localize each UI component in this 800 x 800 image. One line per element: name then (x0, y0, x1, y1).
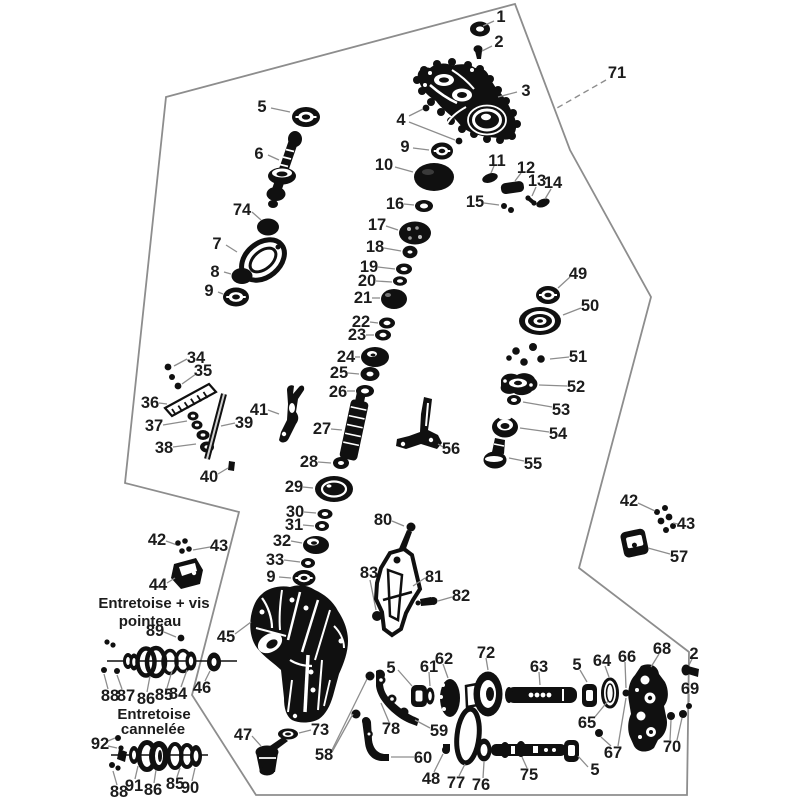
svg-text:74: 74 (233, 201, 252, 219)
svg-text:53: 53 (552, 401, 570, 419)
svg-text:14: 14 (544, 174, 563, 192)
svg-text:76: 76 (472, 776, 490, 794)
svg-text:68: 68 (653, 640, 671, 658)
svg-text:63: 63 (530, 658, 548, 676)
svg-text:78: 78 (382, 720, 400, 738)
svg-text:45: 45 (217, 628, 235, 646)
svg-text:Entretoise + vis: Entretoise + vis (98, 595, 209, 612)
svg-text:9: 9 (400, 138, 409, 156)
svg-text:43: 43 (210, 537, 228, 555)
svg-text:50: 50 (581, 297, 599, 315)
svg-text:15: 15 (466, 193, 484, 211)
svg-text:80: 80 (374, 511, 392, 529)
svg-text:59: 59 (430, 722, 448, 740)
svg-text:48: 48 (422, 770, 440, 788)
svg-text:56: 56 (442, 440, 460, 458)
svg-text:77: 77 (447, 774, 465, 792)
svg-text:1: 1 (496, 8, 505, 26)
svg-text:67: 67 (604, 744, 622, 762)
svg-text:64: 64 (593, 652, 612, 670)
svg-text:91: 91 (125, 777, 143, 795)
svg-text:36: 36 (141, 394, 159, 412)
svg-text:2: 2 (494, 33, 503, 51)
svg-text:46: 46 (193, 679, 211, 697)
svg-text:5: 5 (257, 98, 266, 116)
svg-text:8: 8 (210, 263, 219, 281)
svg-text:25: 25 (330, 364, 348, 382)
svg-text:10: 10 (375, 156, 393, 174)
svg-text:16: 16 (386, 195, 404, 213)
svg-text:71: 71 (608, 64, 626, 82)
svg-text:86: 86 (144, 781, 162, 799)
svg-text:49: 49 (569, 265, 587, 283)
svg-text:72: 72 (477, 644, 495, 662)
svg-text:65: 65 (578, 714, 596, 732)
svg-text:5: 5 (572, 656, 581, 674)
svg-text:44: 44 (149, 576, 168, 594)
svg-text:42: 42 (148, 531, 166, 549)
svg-text:7: 7 (212, 235, 221, 253)
svg-text:23: 23 (348, 326, 366, 344)
svg-text:11: 11 (488, 152, 505, 170)
svg-text:83: 83 (360, 564, 378, 582)
svg-text:87: 87 (117, 687, 135, 705)
svg-text:38: 38 (155, 439, 173, 457)
svg-text:20: 20 (358, 272, 376, 290)
svg-text:70: 70 (663, 738, 681, 756)
svg-text:82: 82 (452, 587, 470, 605)
svg-text:cannelée: cannelée (121, 721, 185, 738)
svg-text:58: 58 (315, 746, 333, 764)
svg-text:47: 47 (234, 726, 252, 744)
svg-text:41: 41 (250, 401, 268, 419)
svg-text:73: 73 (311, 721, 329, 739)
svg-text:75: 75 (520, 766, 538, 784)
svg-text:5: 5 (590, 761, 599, 779)
svg-text:32: 32 (273, 532, 291, 550)
svg-text:57: 57 (670, 548, 688, 566)
svg-text:42: 42 (620, 492, 638, 510)
svg-text:52: 52 (567, 378, 585, 396)
svg-text:84: 84 (169, 685, 188, 703)
svg-text:9: 9 (266, 568, 275, 586)
svg-text:29: 29 (285, 478, 303, 496)
svg-text:17: 17 (368, 216, 386, 234)
svg-text:62: 62 (435, 650, 453, 668)
svg-text:51: 51 (569, 348, 587, 366)
svg-text:69: 69 (681, 680, 699, 698)
svg-text:3: 3 (521, 82, 530, 100)
svg-text:2: 2 (689, 645, 698, 663)
svg-text:90: 90 (181, 779, 199, 797)
svg-text:66: 66 (618, 648, 636, 666)
svg-text:6: 6 (254, 145, 263, 163)
svg-text:35: 35 (194, 362, 212, 380)
svg-text:21: 21 (354, 289, 372, 307)
svg-text:54: 54 (549, 425, 568, 443)
svg-text:92: 92 (91, 735, 109, 753)
svg-text:81: 81 (425, 568, 443, 586)
svg-text:27: 27 (313, 420, 331, 438)
svg-text:26: 26 (329, 383, 347, 401)
svg-text:60: 60 (414, 749, 432, 767)
svg-text:40: 40 (200, 468, 218, 486)
svg-text:4: 4 (396, 111, 406, 129)
svg-text:9: 9 (204, 282, 213, 300)
svg-text:43: 43 (677, 515, 695, 533)
svg-text:28: 28 (300, 453, 318, 471)
svg-text:33: 33 (266, 551, 284, 569)
svg-text:55: 55 (524, 455, 542, 473)
svg-text:5: 5 (386, 659, 395, 677)
svg-text:18: 18 (366, 238, 384, 256)
svg-text:89: 89 (146, 622, 164, 640)
svg-text:37: 37 (145, 417, 163, 435)
